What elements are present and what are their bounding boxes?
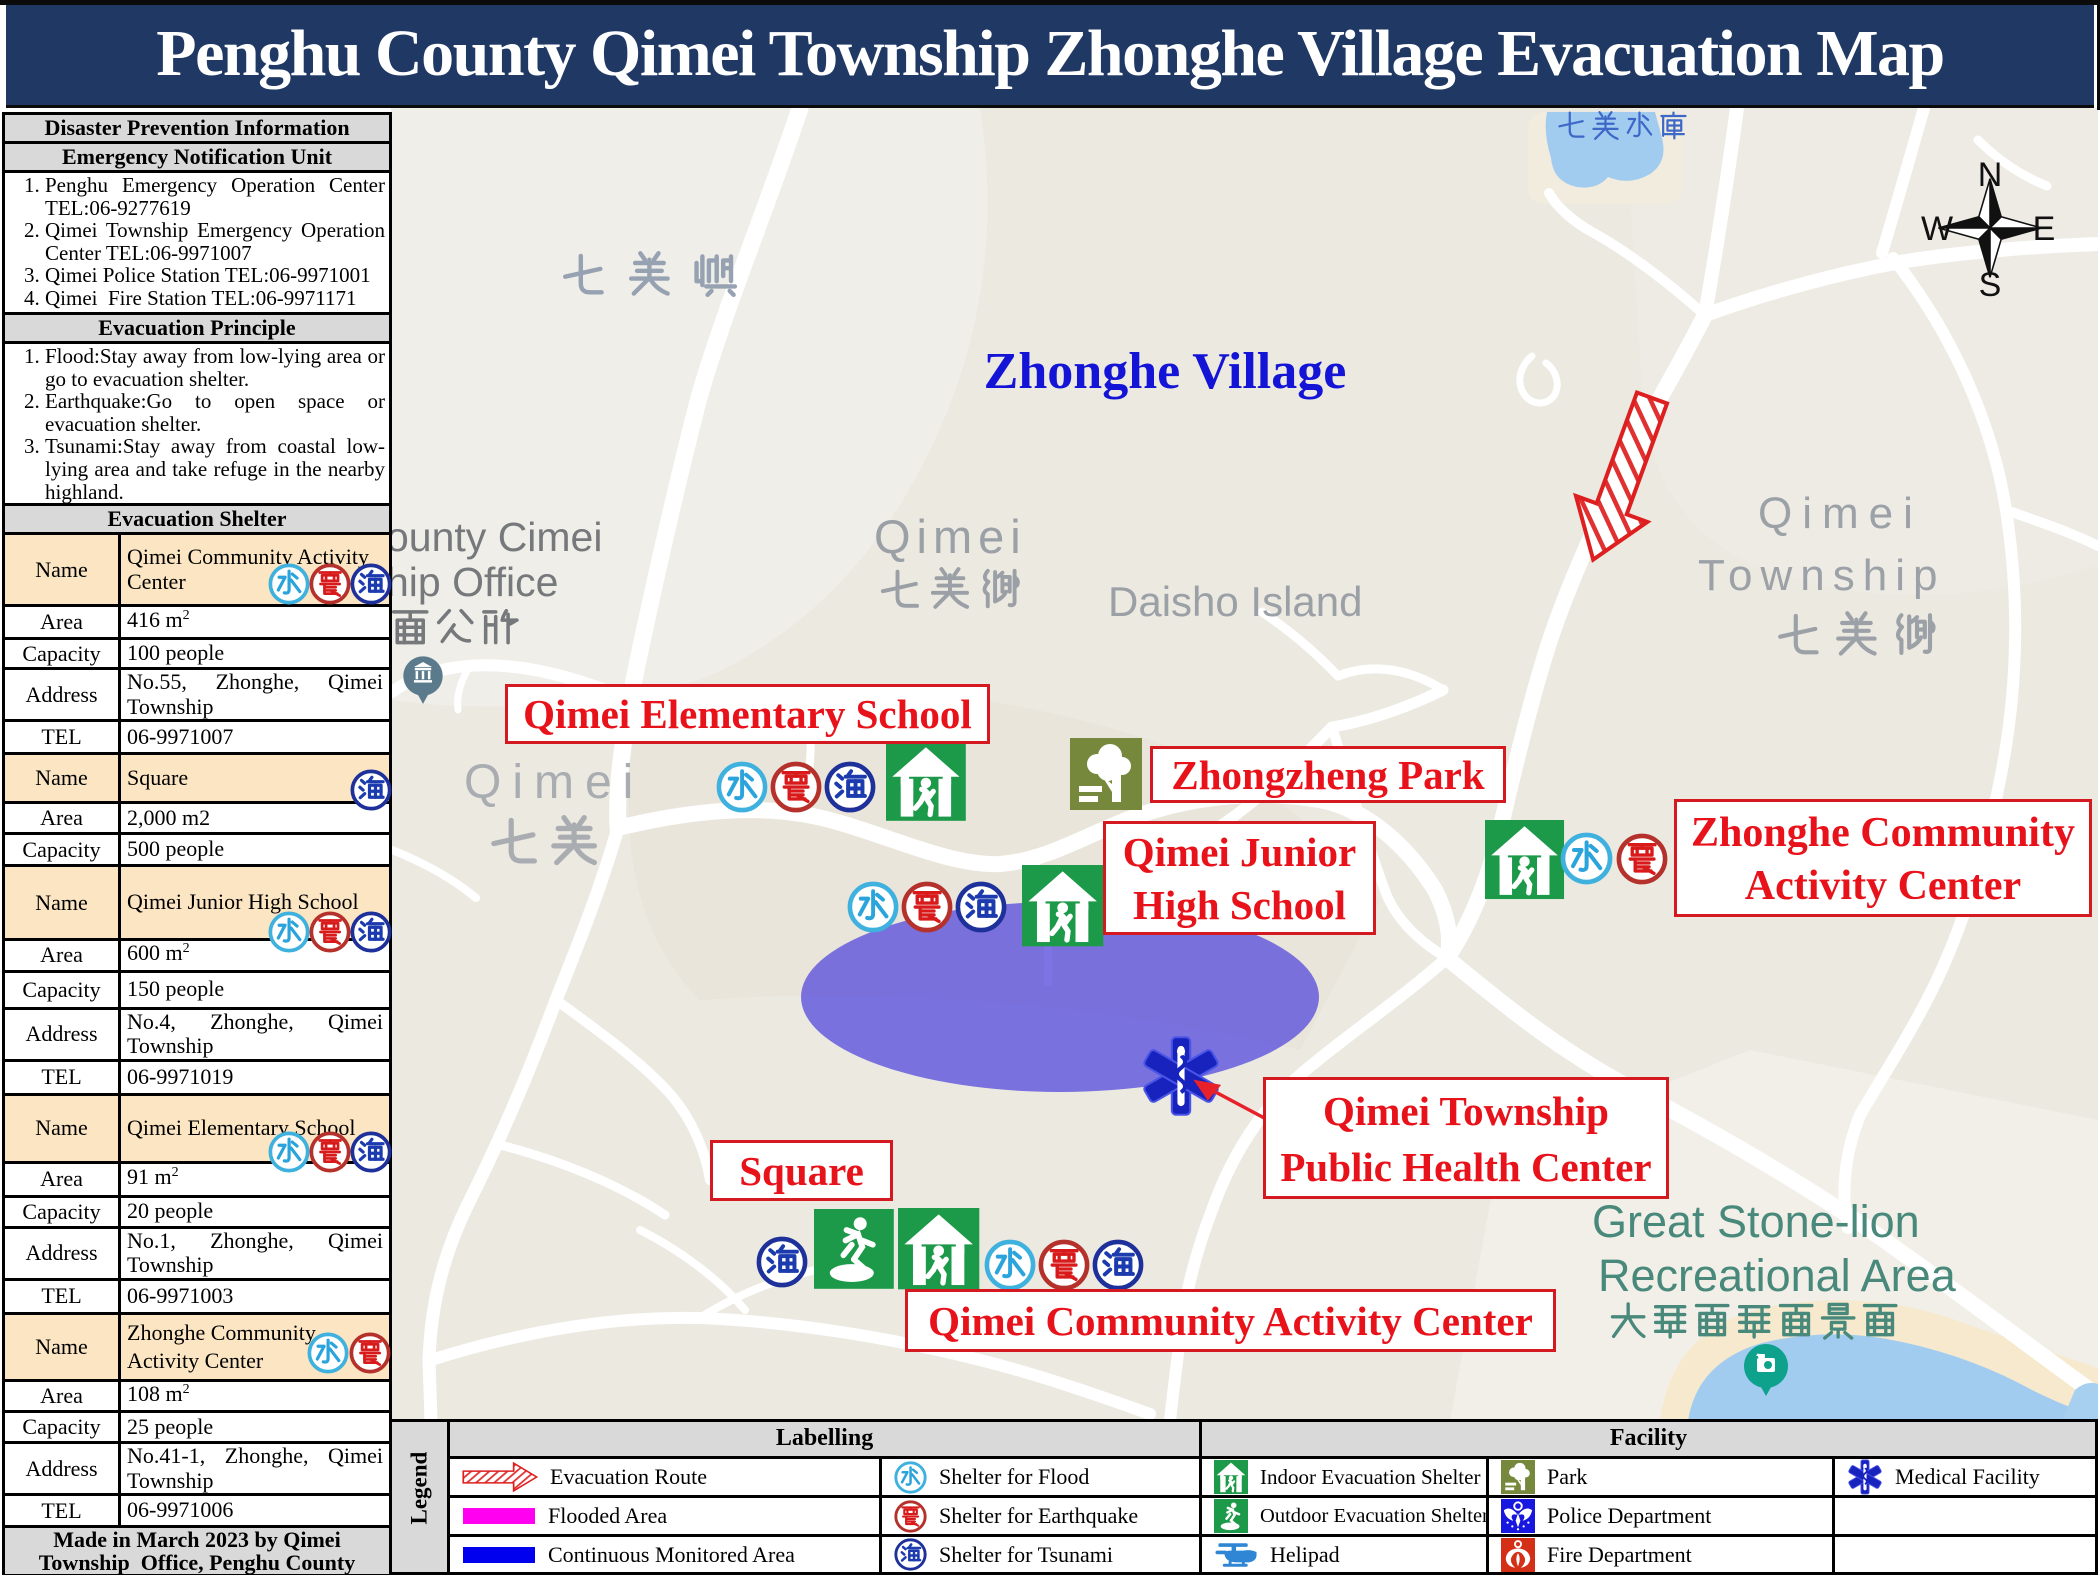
svg-text:Qimei: Qimei	[464, 756, 644, 809]
svg-text:Recreational Area: Recreational Area	[1598, 1250, 1957, 1301]
svg-text:Great Stone-lion: Great Stone-lion	[1592, 1196, 1920, 1247]
svg-text:hip Office: hip Office	[386, 559, 558, 605]
svg-text:ounty Cimei: ounty Cimei	[386, 514, 602, 560]
svg-text:E: E	[2033, 210, 2056, 248]
svg-text:Qimei: Qimei	[1758, 489, 1923, 538]
svg-text:S: S	[1979, 266, 2002, 304]
svg-text:Township: Township	[1698, 551, 1945, 600]
svg-text:Daisho Island: Daisho Island	[1108, 578, 1362, 625]
svg-text:W: W	[1921, 210, 1953, 248]
svg-text:N: N	[1978, 156, 2003, 194]
svg-text:Qimei: Qimei	[874, 510, 1027, 563]
